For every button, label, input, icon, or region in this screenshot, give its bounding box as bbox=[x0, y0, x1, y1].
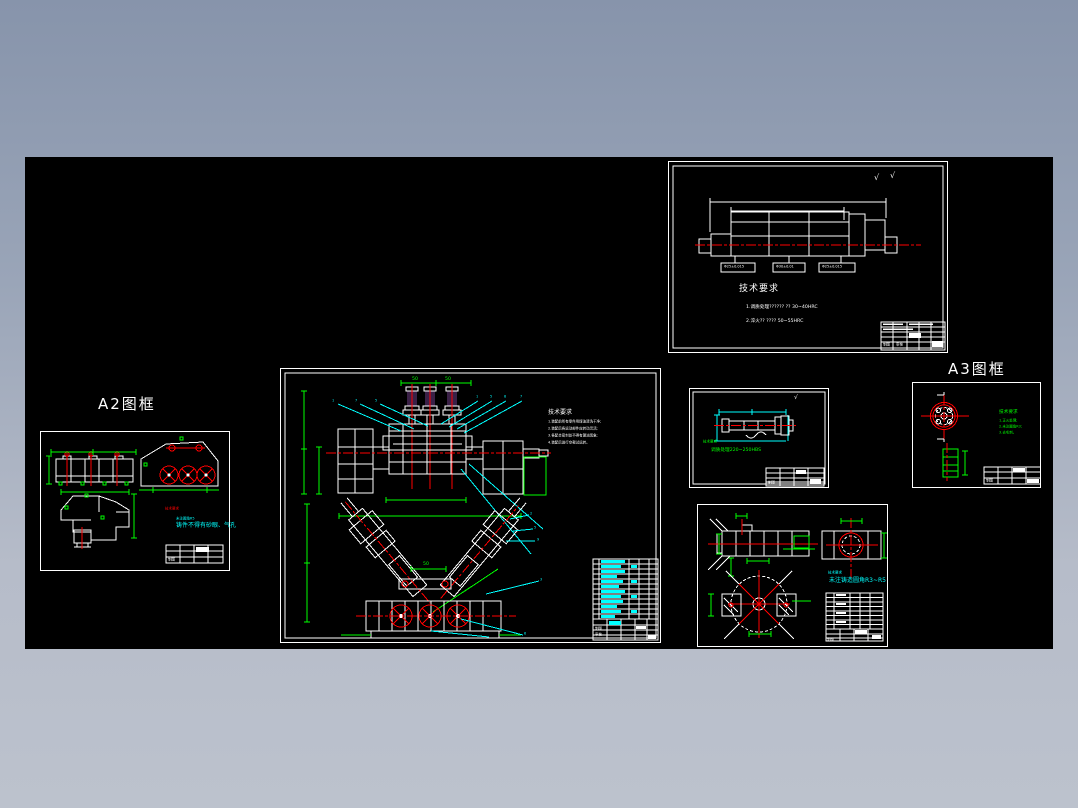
drawing-frame-shaft[interactable]: √ √ Φ25±0.015 Φ30±0.01 Φ25±0.015 技术要求 1.… bbox=[668, 161, 948, 353]
balloon-number: 5 bbox=[534, 526, 536, 529]
balloon-number: 7 bbox=[520, 395, 522, 398]
drawing-frame-a2-housing[interactable]: 技术要求 未注圆角R5 铸件不得有砂眼、气孔 制图 bbox=[40, 431, 230, 571]
cyan-note-line: 未注铸造圆角R3~R5 bbox=[829, 578, 886, 584]
tech-note-line: 4.装配后进行空载试运转。 bbox=[548, 441, 590, 444]
title-block-label: 审核 bbox=[896, 343, 903, 346]
a3-frame-label: A3图框 bbox=[948, 362, 1006, 377]
tech-requirements-title: 技术要求 bbox=[739, 285, 779, 294]
title-block-label: 制图 bbox=[768, 481, 775, 484]
tech-note-line: 1.正火处理; bbox=[999, 419, 1017, 422]
dimension-label: 50 bbox=[423, 562, 429, 567]
balloon-number: 9 bbox=[537, 538, 539, 541]
dimension-label: 50 bbox=[412, 377, 418, 382]
cyan-note-line: 未注圆角R5 bbox=[176, 517, 195, 520]
balloon-number: 5 bbox=[490, 395, 492, 398]
tech-note-line: 2.装配后各运动部件应转动灵活; bbox=[548, 427, 598, 430]
tech-note-line: 3.去毛刺。 bbox=[999, 431, 1016, 434]
roughness-icon: √ bbox=[794, 395, 798, 401]
balloon-number: 5 bbox=[375, 399, 377, 402]
cyan-note-line: 技术要求 bbox=[828, 571, 842, 574]
tolerance-box-label: Φ25±0.015 bbox=[724, 265, 744, 268]
tolerance-box-label: Φ30±0.01 bbox=[776, 265, 794, 268]
title-block-label: 制图 bbox=[883, 343, 890, 346]
drawing-frame-assembly[interactable]: 50 50 50 1 7 5 1 5 8 7 2 5 9 3 6 技术要求 1.… bbox=[280, 368, 661, 643]
gear-circles bbox=[160, 466, 215, 484]
tech-note-line: 2.淬火?? ???? 50~55HRC bbox=[746, 319, 803, 324]
tech-note-line: 1.装配前所有零件用煤油清洗干净; bbox=[548, 420, 601, 423]
tech-note-line: 调质处理220~250HBS bbox=[711, 448, 761, 453]
flange-drawing bbox=[913, 383, 1040, 487]
title-block-label: 制图 bbox=[168, 558, 175, 561]
tech-note-line: 1.调质处理?????? ?? 30~40HRC bbox=[746, 305, 818, 310]
right-cylinder-arm bbox=[429, 491, 534, 608]
cyan-note-line: 铸件不得有砂眼、气孔 bbox=[176, 523, 236, 529]
title-block-label: 审核 bbox=[595, 633, 602, 636]
a2-frame-label: A2图框 bbox=[98, 397, 156, 412]
spider-drawing bbox=[698, 505, 887, 646]
balloon-number: 2 bbox=[530, 512, 532, 515]
parts-table bbox=[826, 593, 883, 641]
title-block-label: 制图 bbox=[986, 479, 993, 482]
tech-note-line: 技术要求 bbox=[703, 440, 717, 443]
title-block-label: 制图 bbox=[595, 627, 602, 630]
red-note: 技术要求 bbox=[165, 507, 179, 510]
drawing-frame-spider[interactable]: 技术要求 未注铸造圆角R3~R5 制图 bbox=[697, 504, 888, 647]
balloon-number: 7 bbox=[355, 399, 357, 402]
balloon-number: 1 bbox=[332, 399, 334, 402]
assembly-drawing bbox=[281, 369, 660, 642]
a2-housing-drawing bbox=[41, 432, 229, 570]
cad-workspace[interactable]: A2图框 A3图框 bbox=[25, 157, 1053, 649]
drawing-frame-flange[interactable]: 技术要求 1.正火处理; 2.未注圆角R3; 3.去毛刺。 制图 bbox=[912, 382, 1041, 488]
screenshot-stage: A2图框 A3图框 bbox=[0, 0, 1078, 808]
balloon-number: 6 bbox=[524, 632, 526, 635]
balloon-number: 1 bbox=[476, 395, 478, 398]
roughness-icon: √ bbox=[890, 172, 895, 180]
title-block-label: 制图 bbox=[827, 638, 834, 641]
tech-requirements-title: 技术要求 bbox=[999, 410, 1018, 415]
drawing-frame-small-shaft[interactable]: √ 技术要求 调质处理220~250HBS 制图 bbox=[689, 388, 829, 488]
left-cylinder-arm bbox=[333, 491, 442, 613]
dimension-label: 50 bbox=[445, 377, 451, 382]
shaft-drawing bbox=[669, 162, 947, 352]
tech-note-line: 3.各配合密封处不得有漏油现象; bbox=[548, 434, 598, 437]
balloon-number: 8 bbox=[504, 395, 506, 398]
tech-requirements-title: 技术要求 bbox=[548, 410, 572, 416]
bom-table bbox=[593, 559, 658, 640]
balloon-number: 3 bbox=[540, 578, 542, 581]
roughness-icon: √ bbox=[874, 174, 879, 182]
tolerance-box-label: Φ25±0.015 bbox=[822, 265, 842, 268]
small-shaft-drawing bbox=[690, 389, 828, 487]
tech-note-line: 2.未注圆角R3; bbox=[999, 425, 1022, 428]
